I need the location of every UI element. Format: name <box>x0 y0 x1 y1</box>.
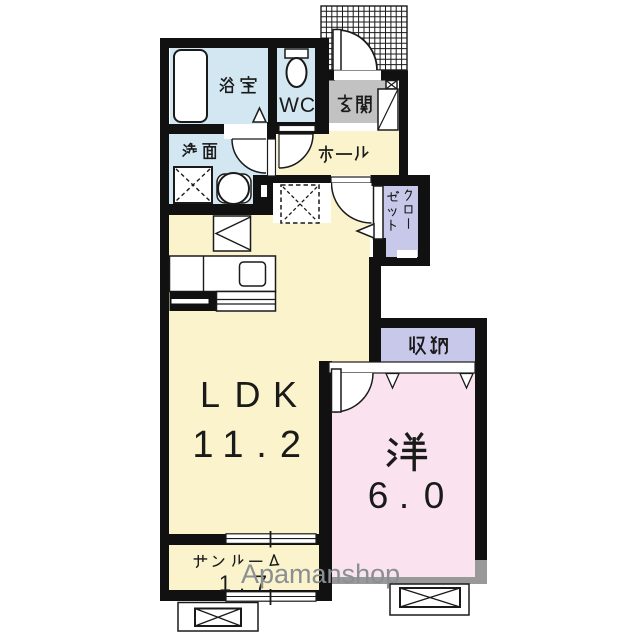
svg-text:2: 2 <box>280 424 301 466</box>
svg-text:W: W <box>279 94 299 117</box>
svg-text:1: 1 <box>192 424 213 466</box>
svg-text:Apamanshop: Apamanshop <box>241 559 400 589</box>
svg-text:L: L <box>200 374 220 415</box>
svg-text:K: K <box>273 374 297 415</box>
svg-text:.: . <box>399 475 409 516</box>
svg-text:1: 1 <box>219 571 231 596</box>
svg-text:D: D <box>235 374 261 415</box>
svg-text:C: C <box>300 94 315 117</box>
svg-text:.: . <box>256 424 267 466</box>
svg-text:1: 1 <box>222 424 243 466</box>
svg-text:6: 6 <box>368 475 389 516</box>
svg-text:0: 0 <box>424 475 445 516</box>
